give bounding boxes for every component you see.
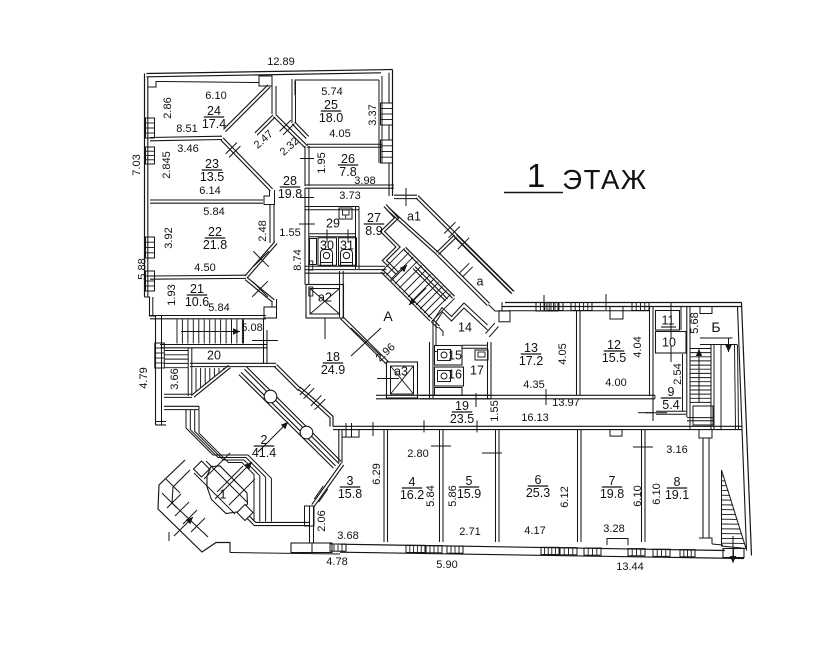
svg-text:2.845: 2.845 (161, 151, 173, 179)
svg-text:4.04: 4.04 (632, 336, 644, 357)
svg-text:29: 29 (326, 217, 340, 231)
svg-text:5: 5 (466, 474, 473, 488)
svg-text:4.05: 4.05 (557, 343, 569, 364)
svg-text:9: 9 (668, 385, 675, 399)
svg-text:3.46: 3.46 (177, 143, 198, 155)
svg-text:25: 25 (324, 98, 338, 112)
svg-text:3.73: 3.73 (339, 190, 360, 202)
svg-text:2.86: 2.86 (162, 97, 174, 118)
svg-text:Б: Б (711, 319, 720, 335)
svg-text:11: 11 (662, 314, 675, 328)
svg-text:5.84: 5.84 (208, 302, 229, 314)
svg-text:a2: a2 (318, 291, 332, 305)
svg-text:6.10: 6.10 (632, 485, 644, 506)
svg-text:23: 23 (205, 157, 219, 171)
svg-text:24.9: 24.9 (321, 363, 345, 377)
svg-text:a: a (477, 275, 484, 289)
svg-text:41.4: 41.4 (252, 446, 276, 460)
svg-text:13.5: 13.5 (200, 170, 224, 184)
svg-text:2.48: 2.48 (257, 220, 269, 241)
svg-text:16.2: 16.2 (400, 488, 424, 502)
svg-text:a3: a3 (394, 365, 408, 379)
svg-text:6.29: 6.29 (371, 463, 383, 484)
svg-text:3.92: 3.92 (163, 227, 175, 248)
svg-text:5.86: 5.86 (447, 485, 459, 506)
svg-text:4.05: 4.05 (329, 128, 350, 140)
svg-text:16: 16 (448, 368, 462, 382)
svg-text:12.89: 12.89 (267, 56, 295, 68)
svg-text:5.90: 5.90 (436, 559, 457, 571)
svg-text:5.08: 5.08 (241, 322, 262, 334)
svg-text:15.8: 15.8 (338, 487, 362, 501)
svg-text:6.12: 6.12 (559, 486, 571, 507)
svg-text:30: 30 (320, 239, 334, 253)
svg-text:24: 24 (207, 104, 221, 118)
svg-text:16.13: 16.13 (521, 412, 549, 424)
svg-text:4.17: 4.17 (524, 525, 545, 537)
svg-text:8.74: 8.74 (292, 249, 304, 270)
svg-text:13.44: 13.44 (616, 561, 644, 573)
svg-text:1.95: 1.95 (316, 152, 328, 173)
svg-text:4.78: 4.78 (326, 556, 347, 568)
svg-text:2.06: 2.06 (316, 510, 328, 531)
svg-text:22: 22 (208, 225, 222, 239)
svg-text:4.79: 4.79 (138, 367, 150, 388)
svg-text:1: 1 (527, 157, 545, 194)
svg-text:6.14: 6.14 (199, 185, 220, 197)
svg-text:1.55: 1.55 (489, 400, 501, 421)
svg-text:1.93: 1.93 (166, 284, 178, 305)
svg-text:17.2: 17.2 (519, 354, 543, 368)
svg-text:3.98: 3.98 (354, 175, 375, 187)
svg-text:25.3: 25.3 (526, 486, 550, 500)
svg-text:23.5: 23.5 (450, 412, 474, 426)
svg-text:2: 2 (261, 433, 268, 447)
svg-text:5.84: 5.84 (203, 206, 224, 218)
svg-text:18: 18 (326, 350, 340, 364)
svg-text:8: 8 (674, 475, 681, 489)
svg-text:3: 3 (347, 474, 354, 488)
svg-text:19.8: 19.8 (600, 487, 624, 501)
svg-text:3.66: 3.66 (169, 368, 181, 389)
svg-text:21: 21 (190, 282, 204, 296)
svg-text:14: 14 (458, 321, 472, 335)
svg-text:5.84: 5.84 (425, 485, 437, 506)
svg-text:4.50: 4.50 (194, 262, 215, 274)
svg-text:3.28: 3.28 (603, 523, 624, 535)
svg-text:3.37: 3.37 (367, 104, 379, 125)
svg-text:19.1: 19.1 (665, 488, 689, 502)
svg-text:18.0: 18.0 (319, 111, 343, 125)
svg-text:26: 26 (341, 152, 355, 166)
svg-text:6.10: 6.10 (651, 483, 663, 504)
svg-text:15.5: 15.5 (602, 351, 626, 365)
svg-text:27: 27 (367, 211, 381, 225)
svg-text:5.88: 5.88 (137, 258, 149, 279)
svg-text:7.8: 7.8 (339, 165, 356, 179)
svg-text:6: 6 (535, 473, 542, 487)
svg-text:19.8: 19.8 (278, 187, 302, 201)
svg-text:15: 15 (448, 349, 462, 363)
svg-text:6.10: 6.10 (205, 90, 226, 102)
svg-text:19: 19 (455, 399, 469, 413)
svg-text:3.16: 3.16 (666, 444, 687, 456)
svg-text:1: 1 (220, 488, 227, 502)
svg-text:5.4: 5.4 (662, 398, 679, 412)
svg-text:8.51: 8.51 (176, 123, 197, 135)
svg-text:17.4: 17.4 (202, 117, 226, 131)
svg-text:12: 12 (607, 338, 621, 352)
svg-text:5.68: 5.68 (689, 312, 701, 333)
svg-text:10: 10 (662, 336, 676, 350)
svg-text:2.80: 2.80 (407, 448, 428, 460)
svg-text:13: 13 (524, 341, 538, 355)
svg-text:31: 31 (340, 239, 354, 253)
svg-text:13.97: 13.97 (552, 397, 580, 409)
svg-text:28: 28 (283, 174, 297, 188)
svg-text:7.03: 7.03 (131, 154, 143, 175)
svg-text:ЭТАЖ: ЭТАЖ (562, 164, 647, 195)
svg-text:А: А (383, 308, 393, 324)
svg-text:20: 20 (207, 349, 221, 363)
svg-text:3.68: 3.68 (337, 530, 358, 542)
svg-text:2.54: 2.54 (672, 363, 684, 384)
svg-text:2.71: 2.71 (459, 526, 480, 538)
svg-text:a1: a1 (407, 210, 421, 224)
svg-text:21.8: 21.8 (203, 238, 227, 252)
svg-text:10.6: 10.6 (185, 295, 209, 309)
svg-text:4.35: 4.35 (523, 379, 544, 391)
svg-text:4.00: 4.00 (605, 377, 626, 389)
svg-text:4: 4 (409, 475, 416, 489)
svg-text:7: 7 (609, 474, 616, 488)
svg-text:5.74: 5.74 (321, 86, 342, 98)
svg-text:1.55: 1.55 (279, 227, 300, 239)
svg-text:8.9: 8.9 (365, 224, 382, 238)
svg-text:17: 17 (470, 364, 484, 378)
svg-text:15.9: 15.9 (457, 487, 481, 501)
